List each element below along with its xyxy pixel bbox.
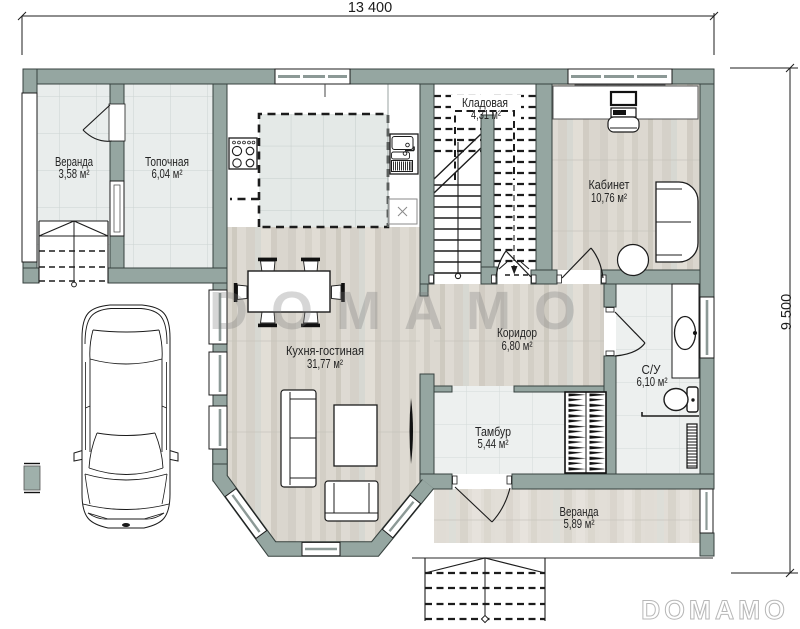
svg-text:31,77 м²: 31,77 м² (307, 357, 343, 371)
svg-text:DOMAMO: DOMAMO (209, 281, 599, 341)
svg-text:5,44 м²: 5,44 м² (478, 437, 509, 451)
svg-text:6,04 м²: 6,04 м² (152, 167, 183, 181)
svg-text:9 500: 9 500 (779, 294, 795, 330)
svg-text:10,76 м²: 10,76 м² (591, 191, 627, 205)
svg-text:6,80 м²: 6,80 м² (502, 339, 533, 353)
svg-text:Кухня-гостиная: Кухня-гостиная (286, 344, 364, 358)
svg-text:DOMAMO: DOMAMO (641, 595, 789, 625)
svg-text:6,10 м²: 6,10 м² (637, 375, 668, 389)
svg-text:4,31 м²: 4,31 м² (471, 108, 501, 122)
svg-text:3,58 м²: 3,58 м² (59, 167, 90, 181)
svg-text:5,89 м²: 5,89 м² (564, 517, 595, 531)
svg-text:Кабинет: Кабинет (589, 178, 630, 192)
svg-text:13 400: 13 400 (348, 0, 392, 16)
